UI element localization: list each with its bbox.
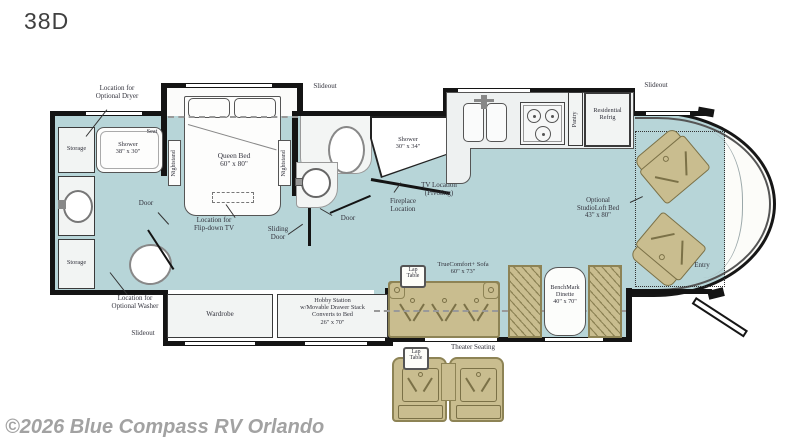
sofa-arm-right [483, 282, 499, 299]
sliding-door-label: Sliding Door [256, 226, 300, 242]
dryer-location-label: Location for Optional Dryer [52, 85, 182, 101]
hobby-station-label: Hobby Station w/Movable Drawer Stack Con… [278, 297, 387, 326]
mid-sink-bowl [301, 168, 331, 198]
slideout-label-kitchen: Slideout [634, 82, 678, 90]
window [186, 83, 272, 88]
dealer-watermark: ©2026 Blue Compass RV Orlando [5, 416, 324, 439]
kitchen-faucet [481, 95, 487, 109]
kitchen-faucet-bar [474, 99, 494, 102]
bath-sink-bowl [63, 190, 93, 223]
seat-pattern [488, 287, 494, 293]
seat-pattern [394, 287, 400, 293]
kitchen-sink-right [486, 103, 507, 142]
lap-table-sofa-label: Lap Table [400, 267, 426, 280]
entry-label: Entry [680, 262, 724, 270]
wall [630, 289, 712, 294]
lap-table-theater-label: Lap Table [403, 349, 429, 362]
mid-sink-faucet [295, 178, 303, 186]
burner [535, 126, 551, 142]
tv-location-label: TV Location (Pivoting) [406, 182, 472, 198]
seat-pattern [406, 372, 434, 402]
nightstand-left-label: Nightstand [171, 135, 178, 192]
floorplan-canvas: 38D [0, 0, 800, 445]
mid-shower-label: Shower 30" x 34" [376, 136, 440, 151]
seat-footrest [398, 405, 443, 419]
window [185, 341, 255, 346]
sofa-recline-pattern [430, 298, 458, 328]
burner [545, 109, 559, 123]
refrigerator-label: Residential Refrig [584, 107, 631, 121]
queen-bed-label: Queen Bed 60" x 80" [194, 152, 274, 168]
door-rear-label: Door [128, 200, 164, 208]
bed-pillow-left [188, 98, 230, 118]
bath-faucet [58, 200, 66, 209]
sofa-recline-pattern [462, 298, 490, 328]
sofa-label: TrueComfort+ Sofa 60" x 73" [426, 261, 500, 276]
kitchen-counter-return [446, 148, 471, 184]
theater-seating-label: Theater Seating [432, 344, 514, 352]
cooktop [520, 102, 565, 145]
shower-seat-label: Seat [140, 129, 164, 136]
rear-shower-label: Shower 38" x 30" [96, 141, 160, 156]
wall [50, 111, 55, 295]
storage-bottom-label: Storage [58, 259, 95, 266]
bed-pillow-right [234, 98, 276, 118]
window [646, 111, 690, 116]
seat-footrest [456, 405, 501, 419]
flip-tv-zone [212, 192, 254, 203]
window [86, 111, 142, 116]
theater-seat-right [449, 357, 504, 422]
sofa-recline-pattern [398, 298, 426, 328]
dinette-label: BenchMark Dinette 40" x 70" [544, 285, 586, 306]
burner [527, 109, 541, 123]
wardrobe-label: Wardrobe [167, 311, 273, 319]
dinette-bench-left [508, 265, 542, 338]
flip-tv-label: Location for Flip-down TV [172, 217, 256, 233]
slideout-label-bottom: Slideout [120, 330, 166, 338]
fireplace-label: Fireplace Location [372, 198, 434, 214]
slideout-label-bedroom: Slideout [304, 83, 346, 91]
nightstand-right-label: Nightstand [281, 135, 288, 192]
storage-top-label: Storage [58, 145, 95, 152]
dinette-bench-right [588, 265, 622, 338]
door-mid-label: Door [330, 215, 366, 223]
seat-pattern [464, 372, 492, 402]
bedroom-slideout-line [168, 116, 298, 118]
wall [626, 288, 632, 342]
window [305, 341, 367, 346]
floorplan-model-title: 38D [24, 8, 69, 35]
theater-console [441, 363, 456, 401]
entry-steps [692, 297, 748, 337]
pantry-label: Pantry [572, 87, 579, 152]
